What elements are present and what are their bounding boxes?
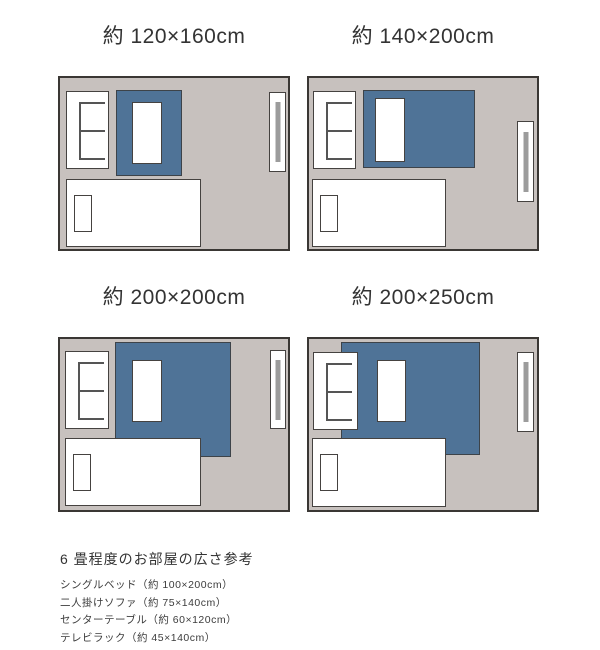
sofa-cushion-line [81, 102, 105, 104]
tv-screen [276, 360, 281, 420]
sofa-cushion-line [328, 158, 352, 160]
tv-rack [517, 352, 534, 432]
legend-heading: 6 畳程度のお部屋の広さ参考 [60, 549, 254, 569]
single-bed [312, 179, 446, 247]
sofa-cushion-line [328, 102, 352, 104]
tv-rack [270, 350, 286, 429]
pillow [73, 454, 91, 491]
sofa-cushion-line [80, 390, 104, 392]
room-diagram-200x200 [58, 337, 290, 512]
center-table [132, 102, 162, 164]
pillow [320, 195, 338, 232]
center-table [377, 360, 406, 422]
room-diagram-140x200 [307, 76, 539, 251]
sofa-cushion-line [328, 419, 352, 421]
sofa-cushion-line [81, 130, 105, 132]
rug-size-guide-page: 約 120×160cm 約 [0, 0, 600, 650]
sofa-cushion-line [328, 130, 352, 132]
tv-rack [269, 92, 286, 172]
list-item-center-table: センターテーブル（約 60×120cm） [60, 615, 254, 626]
pillow [74, 195, 92, 232]
tv-screen [523, 132, 528, 192]
center-table [375, 98, 405, 162]
single-bed [66, 179, 201, 247]
single-bed [312, 438, 446, 507]
room-diagrams-grid: 約 120×160cm 約 [58, 24, 539, 512]
tv-rack [517, 121, 534, 202]
room-diagram-120x160 [58, 76, 290, 251]
center-table [132, 360, 162, 422]
sofa-cushions [78, 362, 104, 420]
sofa-cushions [79, 102, 105, 160]
panel-rug-200x250: 約 200×250cm [307, 285, 539, 512]
panel-rug-120x160: 約 120×160cm [58, 24, 290, 251]
panel-rug-140x200: 約 140×200cm [307, 24, 539, 251]
rug-size-title: 約 200×250cm [307, 285, 539, 311]
list-item-sofa: 二人掛けソファ（約 75×140cm） [60, 598, 254, 609]
sofa-cushions [326, 102, 352, 160]
two-seater-sofa [313, 352, 358, 430]
sofa-cushion-line [328, 391, 352, 393]
sofa-cushion-line [80, 418, 104, 420]
rug-size-title: 約 200×200cm [58, 285, 290, 311]
rug-size-title: 約 120×160cm [58, 24, 290, 50]
panel-rug-200x200: 約 200×200cm [58, 285, 290, 512]
tv-screen [275, 102, 280, 162]
sofa-cushion-line [328, 363, 352, 365]
sofa-cushions [326, 363, 352, 421]
list-item-single-bed: シングルベッド（約 100×200cm） [60, 580, 254, 591]
room-size-legend: 6 畳程度のお部屋の広さ参考 シングルベッド（約 100×200cm） 二人掛け… [60, 549, 254, 650]
two-seater-sofa [66, 91, 109, 169]
furniture-size-list: シングルベッド（約 100×200cm） 二人掛けソファ（約 75×140cm）… [60, 580, 254, 643]
two-seater-sofa [313, 91, 356, 169]
sofa-cushion-line [81, 158, 105, 160]
tv-screen [523, 362, 528, 422]
pillow [320, 454, 338, 491]
list-item-tv-rack: テレビラック（約 45×140cm） [60, 633, 254, 644]
room-diagram-200x250 [307, 337, 539, 512]
two-seater-sofa [65, 351, 109, 429]
rug-size-title: 約 140×200cm [307, 24, 539, 50]
single-bed [65, 438, 201, 506]
sofa-cushion-line [80, 362, 104, 364]
